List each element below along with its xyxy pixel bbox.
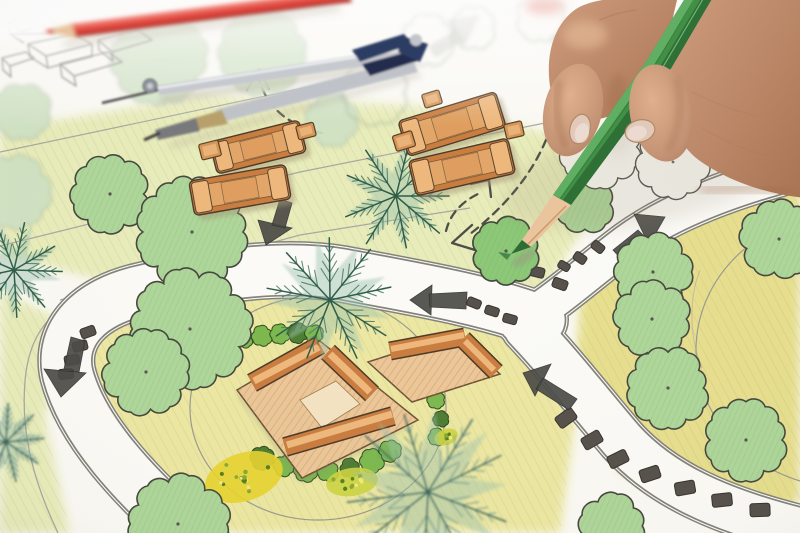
vignette [0, 0, 800, 533]
photo-stage: Close-up photograph of a landscape archi… [0, 0, 800, 533]
landscape-plan-photo [0, 0, 800, 533]
